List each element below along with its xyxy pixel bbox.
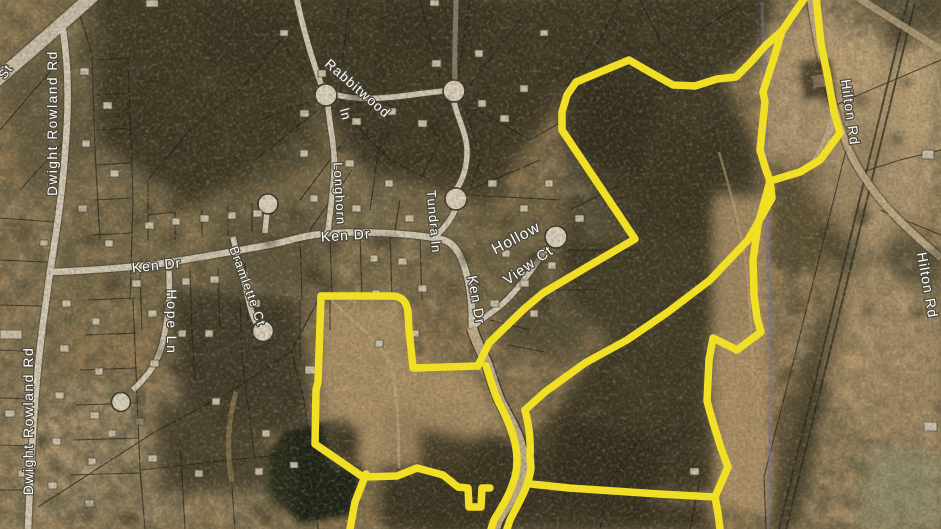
svg-text:Hope Ln: Hope Ln	[164, 289, 180, 355]
svg-text:Dwight Rowland Rd: Dwight Rowland Rd	[20, 347, 36, 495]
svg-text:Dwight Rowland Rd: Dwight Rowland Rd	[45, 50, 60, 196]
